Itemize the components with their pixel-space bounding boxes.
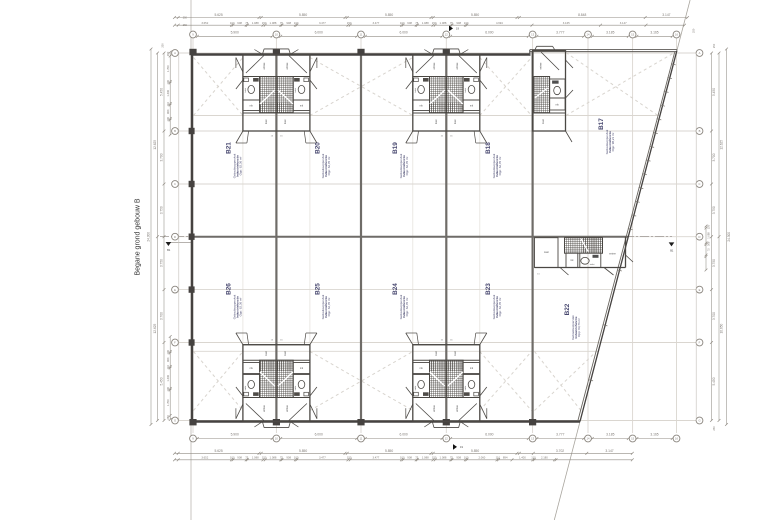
svg-text:D: D [699,235,701,239]
svg-text:3.477: 3.477 [372,21,379,25]
svg-text:3.147: 3.147 [605,449,613,453]
svg-text:5.900: 5.900 [231,433,239,437]
svg-text:entree: entree [540,62,543,69]
svg-text:3.702: 3.702 [556,449,564,453]
svg-text:12.625: 12.625 [720,140,724,150]
svg-text:4.694: 4.694 [496,21,503,25]
svg-text:3.477: 3.477 [372,456,379,460]
svg-text:3.477: 3.477 [319,21,326,25]
svg-text:250: 250 [712,426,716,431]
svg-text:75: 75 [415,456,419,460]
svg-text:1.088: 1.088 [440,456,447,460]
svg-text:B26: B26 [226,283,233,295]
svg-text:A: A [174,51,176,55]
svg-text:14: 14 [587,437,590,441]
svg-text:B1: B1 [167,248,171,252]
svg-text:Opp: 62,70 m²: Opp: 62,70 m² [327,298,331,317]
svg-text:1.088: 1.088 [252,456,259,460]
svg-text:B17: B17 [598,118,605,130]
svg-text:75: 75 [245,21,249,25]
svg-text:100: 100 [400,21,405,25]
svg-text:entree: entree [433,404,436,411]
svg-text:250: 250 [712,43,716,48]
svg-text:Opp: 62,36 m²: Opp: 62,36 m² [238,298,242,317]
svg-text:24.300: 24.300 [727,232,731,242]
svg-text:904: 904 [166,109,170,114]
svg-text:1.400: 1.400 [166,374,170,381]
svg-text:toilet: toilet [414,385,417,390]
svg-text:3.777: 3.777 [556,433,564,437]
svg-text:150: 150 [262,456,267,460]
svg-text:2.060: 2.060 [478,456,485,460]
svg-text:908: 908 [286,456,291,460]
svg-text:Opp: 93,76 m²: Opp: 93,76 m² [577,318,581,337]
svg-text:150: 150 [262,21,267,25]
svg-text:3.147: 3.147 [662,13,670,17]
svg-text:toilet: toilet [244,88,247,93]
svg-text:6.000: 6.000 [315,30,323,34]
svg-text:3.185: 3.185 [606,433,614,437]
svg-text:3.165: 3.165 [650,433,658,437]
svg-text:5.850: 5.850 [385,13,393,17]
svg-text:100: 100 [166,116,170,121]
svg-text:entree: entree [263,62,266,69]
svg-text:5.850: 5.850 [299,449,307,453]
svg-text:B24: B24 [392,283,399,295]
svg-text:100: 100 [230,456,235,460]
svg-text:250: 250 [183,17,188,20]
svg-text:toilet: toilet [464,88,467,93]
svg-text:B19: B19 [392,142,399,154]
svg-text:12.625: 12.625 [153,323,157,333]
svg-text:3.750: 3.750 [160,206,164,214]
svg-text:10: 10 [275,33,278,37]
svg-text:5.450: 5.450 [160,377,164,385]
svg-text:B22: B22 [564,303,571,315]
svg-text:1.088: 1.088 [270,21,277,25]
svg-text:16: 16 [675,437,678,441]
svg-text:12.625: 12.625 [153,140,157,150]
svg-text:1.088: 1.088 [440,21,447,25]
svg-text:908: 908 [407,21,412,25]
svg-text:toilet: toilet [464,385,467,390]
svg-text:904: 904 [166,357,170,362]
svg-text:E: E [174,288,176,292]
svg-text:kast: kast [265,351,268,356]
svg-text:toilet: toilet [294,385,297,390]
svg-text:110: 110 [531,456,536,460]
svg-text:B20: B20 [314,142,321,154]
svg-text:3.477: 3.477 [319,456,326,460]
svg-text:3.777: 3.777 [556,30,564,34]
svg-text:kast: kast [284,351,287,356]
svg-text:A: A [699,51,701,55]
svg-text:3.165: 3.165 [563,21,570,25]
svg-text:2.180: 2.180 [541,456,548,460]
svg-text:75: 75 [415,21,419,25]
svg-text:250: 250 [692,28,696,33]
svg-text:B21: B21 [226,142,233,154]
svg-text:1.760: 1.760 [166,65,170,72]
svg-text:250: 250 [183,24,188,27]
svg-text:5.850: 5.850 [471,449,479,453]
svg-text:100: 100 [400,456,405,460]
svg-text:entree: entree [433,62,436,69]
svg-text:100: 100 [166,79,170,84]
svg-text:3.700: 3.700 [160,153,164,161]
svg-text:5.850: 5.850 [385,449,393,453]
svg-text:15: 15 [631,437,634,441]
svg-text:1.088: 1.088 [270,456,277,460]
svg-text:6.000: 6.000 [485,30,493,34]
svg-text:B: B [699,129,701,133]
svg-text:6.000: 6.000 [399,433,407,437]
svg-text:110: 110 [496,456,501,460]
svg-text:3.700: 3.700 [712,153,716,161]
svg-text:kast: kast [435,119,438,124]
svg-text:kast: kast [265,119,268,124]
svg-text:75: 75 [450,21,454,25]
svg-text:Begane grond gebouw B: Begane grond gebouw B [135,198,142,275]
svg-text:908: 908 [286,21,291,25]
svg-text:908: 908 [456,21,461,25]
svg-text:308: 308 [706,241,710,246]
svg-text:1.760: 1.760 [166,399,170,406]
svg-text:75: 75 [280,21,284,25]
svg-text:Opp: 62,70 m²: Opp: 62,70 m² [327,157,331,176]
svg-text:10.650: 10.650 [720,323,724,333]
svg-text:Opp: 62,70 m²: Opp: 62,70 m² [405,157,409,176]
svg-text:3.652: 3.652 [201,456,208,460]
svg-text:kast: kast [284,119,287,124]
svg-text:250: 250 [161,43,165,48]
svg-text:75: 75 [450,456,454,460]
svg-text:3.165: 3.165 [650,30,658,34]
svg-text:G: G [698,419,700,423]
svg-text:150: 150 [706,224,710,229]
svg-text:894: 894 [503,456,508,460]
svg-text:10: 10 [275,437,278,441]
svg-text:entree: entree [263,404,266,411]
svg-text:C: C [174,182,176,186]
svg-text:100: 100 [166,349,170,354]
svg-text:8.848: 8.848 [578,13,586,17]
svg-text:260: 260 [166,51,170,56]
svg-text:150: 150 [432,21,437,25]
svg-text:5.900: 5.900 [231,30,239,34]
svg-text:6.000: 6.000 [315,433,323,437]
svg-text:E: E [699,288,701,292]
svg-text:5.850: 5.850 [471,13,479,17]
svg-text:5.450: 5.450 [712,377,716,385]
svg-text:3.147: 3.147 [620,21,627,25]
svg-text:3.185: 3.185 [606,30,614,34]
svg-text:B23: B23 [485,283,492,295]
svg-text:100: 100 [166,386,170,391]
svg-text:entree: entree [286,404,289,411]
svg-text:100: 100 [230,21,235,25]
svg-text:100: 100 [464,21,469,25]
svg-text:3.750: 3.750 [712,206,716,214]
svg-text:6.000: 6.000 [485,433,493,437]
svg-text:100: 100 [294,456,299,460]
svg-text:Opp: 62,36 m²: Opp: 62,36 m² [238,157,242,176]
svg-text:11: 11 [360,437,363,441]
svg-text:11: 11 [360,33,363,37]
svg-text:24.300: 24.300 [147,232,151,242]
svg-text:3.652: 3.652 [201,21,208,25]
svg-text:12: 12 [445,437,448,441]
svg-text:5.625: 5.625 [214,449,222,453]
svg-text:toilet: toilet [244,385,247,390]
svg-text:Opp: 62,70 m²: Opp: 62,70 m² [498,298,502,317]
svg-text:B18: B18 [485,142,492,154]
svg-text:150: 150 [432,456,437,460]
svg-text:150: 150 [347,21,352,25]
svg-text:B1: B1 [670,248,674,252]
svg-text:Opp: 62,70 m²: Opp: 62,70 m² [405,298,409,317]
svg-text:kast: kast [544,251,549,254]
svg-text:3.750: 3.750 [160,259,164,267]
svg-text:13: 13 [531,33,534,37]
svg-text:3.700: 3.700 [712,312,716,320]
svg-text:1.400: 1.400 [166,89,170,96]
svg-text:1.088: 1.088 [422,21,429,25]
svg-text:1.088: 1.088 [422,456,429,460]
svg-text:1.400: 1.400 [519,456,526,460]
svg-text:75: 75 [280,456,284,460]
svg-text:kast: kast [454,351,457,356]
svg-text:908: 908 [407,456,412,460]
svg-text:14: 14 [587,33,590,37]
svg-text:5.850: 5.850 [299,13,307,17]
svg-text:12: 12 [445,33,448,37]
svg-text:908: 908 [237,21,242,25]
svg-text:15: 15 [631,33,634,37]
svg-text:kast: kast [454,119,457,124]
svg-text:908: 908 [456,456,461,460]
svg-text:5.450: 5.450 [712,88,716,96]
svg-text:kast: kast [435,351,438,356]
svg-text:5.625: 5.625 [214,13,222,17]
svg-text:entree: entree [456,404,459,411]
svg-text:toilet: toilet [590,263,595,266]
svg-text:260: 260 [166,415,170,420]
svg-text:toilet: toilet [414,88,417,93]
svg-text:3.700: 3.700 [160,312,164,320]
svg-text:1.088: 1.088 [252,21,259,25]
svg-text:C: C [699,182,701,186]
svg-text:6.000: 6.000 [399,30,407,34]
svg-text:110: 110 [166,102,170,107]
svg-text:100: 100 [464,456,469,460]
svg-text:100: 100 [294,21,299,25]
svg-text:150: 150 [347,456,352,460]
svg-text:1.088: 1.088 [706,232,710,239]
svg-text:908: 908 [237,456,242,460]
svg-text:16: 16 [675,33,678,37]
svg-text:kast: kast [542,119,545,124]
svg-text:D: D [174,235,176,239]
svg-text:110: 110 [166,365,170,370]
svg-text:entree: entree [456,62,459,69]
svg-text:B: B [174,129,176,133]
svg-text:Opp: 98,21 m²: Opp: 98,21 m² [611,133,615,152]
svg-text:B25: B25 [314,283,321,295]
svg-text:toilet: toilet [294,88,297,93]
svg-text:13: 13 [531,437,534,441]
svg-text:3.750: 3.750 [712,259,716,267]
svg-text:entree: entree [609,253,616,256]
svg-text:75: 75 [245,456,249,460]
svg-text:5.450: 5.450 [160,88,164,96]
svg-text:Opp: 62,70 m²: Opp: 62,70 m² [498,157,502,176]
svg-text:G: G [174,419,176,423]
svg-text:entree: entree [286,62,289,69]
